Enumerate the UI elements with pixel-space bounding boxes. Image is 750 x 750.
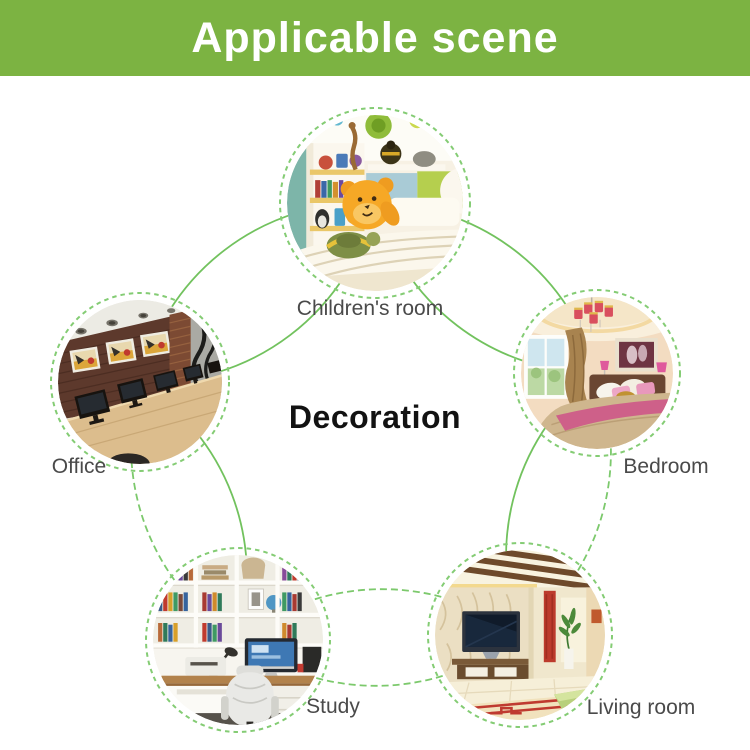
living-room-illustration	[435, 550, 605, 720]
study-illustration	[153, 555, 323, 725]
center-decoration-label: Decoration	[289, 399, 461, 436]
office-photo	[58, 300, 222, 464]
living-room-photo	[435, 550, 605, 720]
children-room-illustration	[287, 115, 463, 291]
label-study: Study	[306, 695, 360, 719]
label-living-room: Living room	[587, 696, 696, 720]
label-office: Office	[52, 455, 106, 479]
children-room-photo	[287, 115, 463, 291]
applicable-scene-infographic: Applicable scene	[0, 0, 750, 750]
bedroom-illustration	[521, 297, 673, 449]
label-children-room: Children's room	[297, 297, 443, 321]
office-illustration	[58, 300, 222, 464]
bedroom-photo	[521, 297, 673, 449]
study-photo	[153, 555, 323, 725]
label-bedroom: Bedroom	[623, 455, 708, 479]
